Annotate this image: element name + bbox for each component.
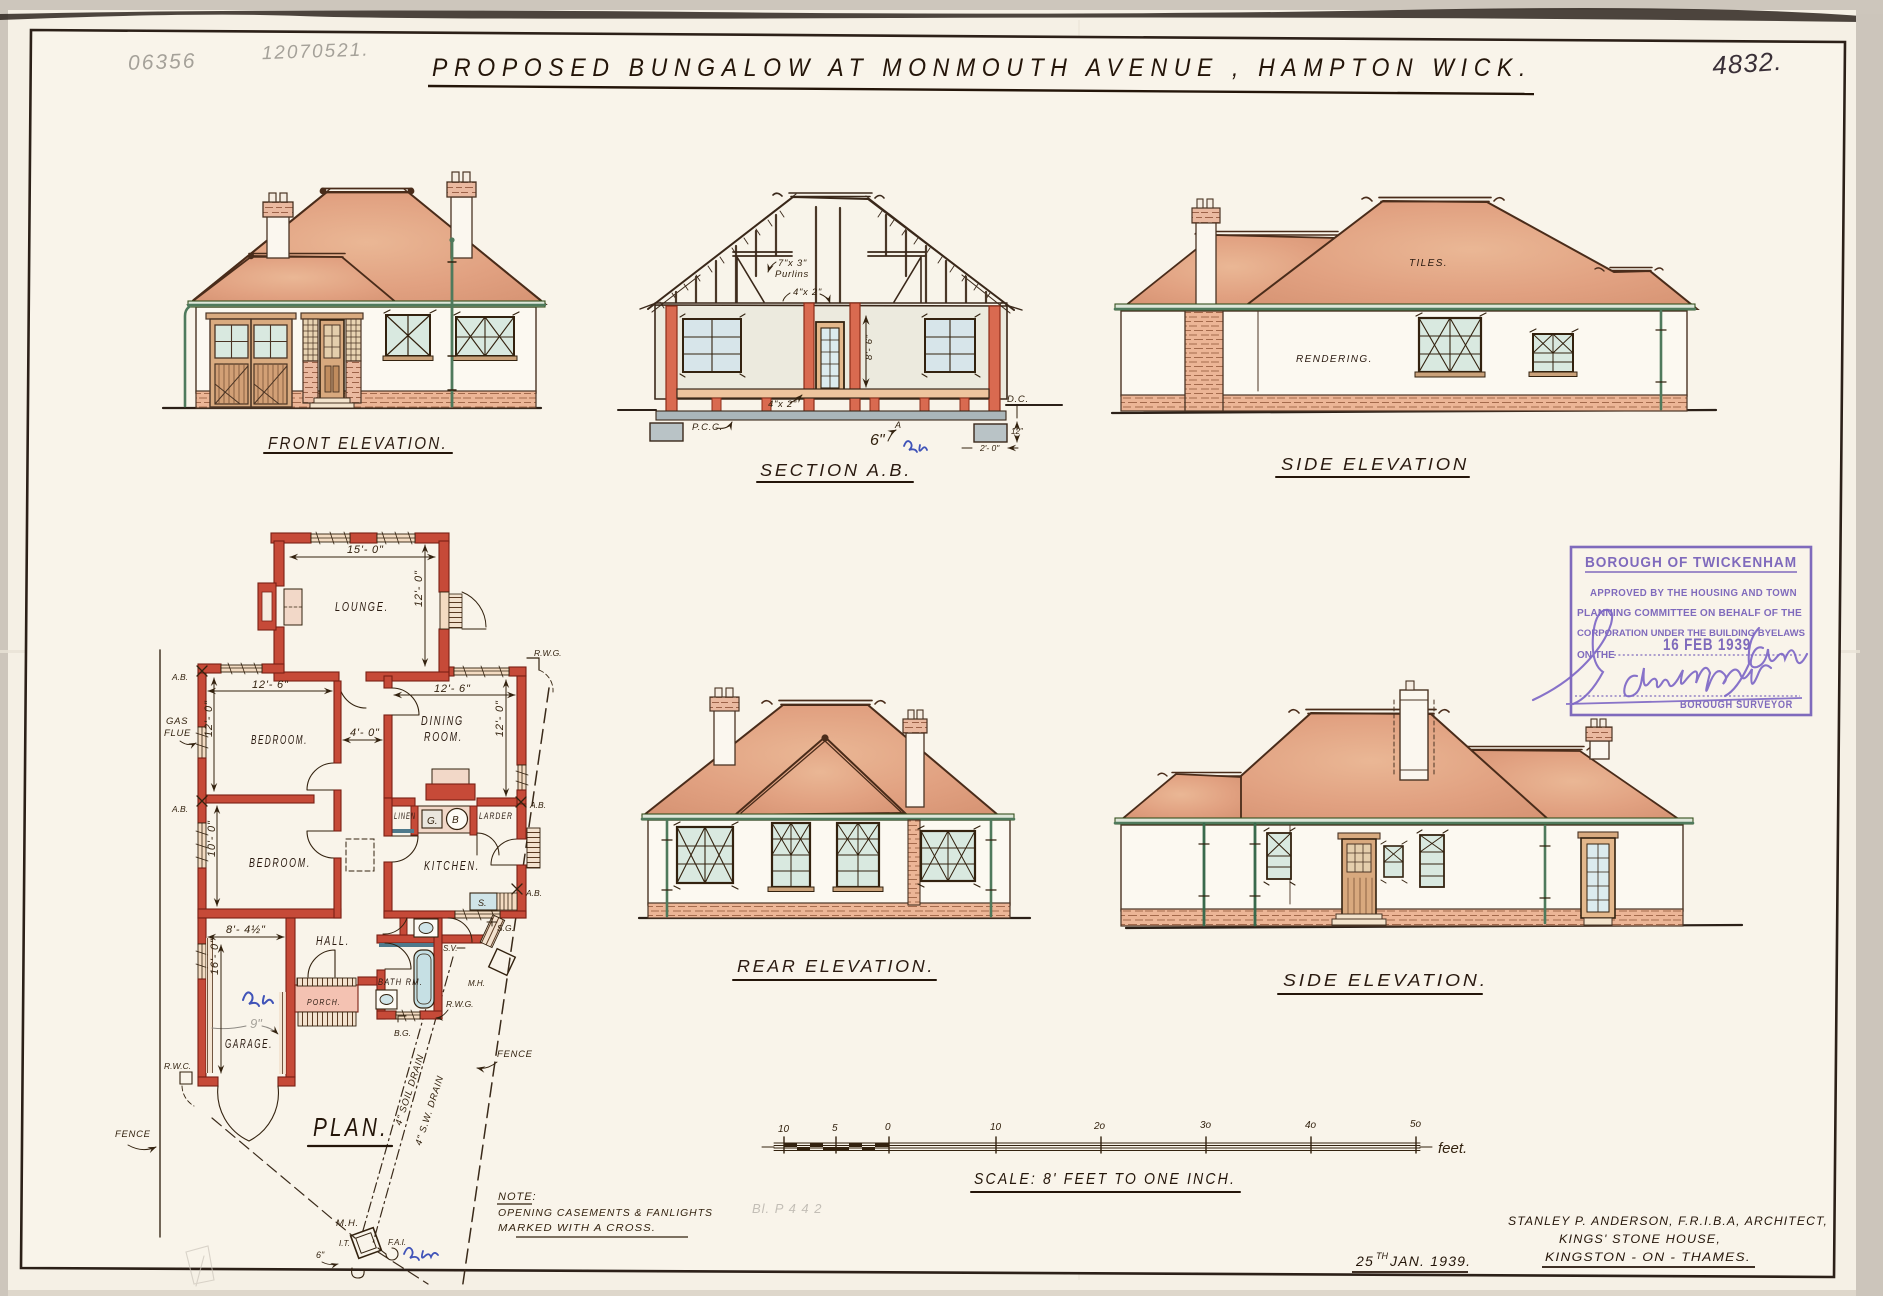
svg-text:0: 0 <box>885 1122 891 1133</box>
svg-text:16'- 0": 16'- 0" <box>209 938 221 975</box>
svg-text:M.H.: M.H. <box>336 1218 359 1229</box>
svg-text:LARDER: LARDER <box>479 811 513 821</box>
svg-text:R.W.G.: R.W.G. <box>534 648 562 658</box>
svg-text:15'- 0": 15'- 0" <box>347 544 384 556</box>
svg-text:STANLEY P. ANDERSON, F.R.I.: STANLEY P. ANDERSON, F.R.I.B.A, ARCHITEC… <box>1508 1214 1828 1228</box>
svg-text:FRONT ELEVATION.: FRONT ELEVATION. <box>268 433 448 453</box>
svg-text:A.B.: A.B. <box>171 804 188 814</box>
svg-text:PLAN.: PLAN. <box>313 1112 389 1142</box>
svg-text:F.A.I.: F.A.I. <box>388 1238 406 1247</box>
svg-text:G.: G. <box>427 816 438 827</box>
svg-text:TILES.: TILES. <box>1409 258 1448 269</box>
svg-text:SIDE ELEVATION: SIDE ELEVATION <box>1281 454 1469 474</box>
svg-text:16 FEB 1939: 16 FEB 1939 <box>1663 636 1751 654</box>
svg-text:A.B.: A.B. <box>525 888 542 898</box>
svg-text:S.G.: S.G. <box>497 923 514 933</box>
svg-text:S.V.: S.V. <box>443 944 458 953</box>
svg-text:B: B <box>452 815 459 826</box>
svg-text:4832.: 4832. <box>1711 46 1783 81</box>
svg-text:P.C.C.: P.C.C. <box>692 422 723 433</box>
svg-text:REAR ELEVATION.: REAR ELEVATION. <box>737 956 935 976</box>
svg-text:OPENING CASEMENTS & FANLIGH: OPENING CASEMENTS & FANLIGHTS <box>498 1207 713 1219</box>
svg-text:12070521.: 12070521. <box>261 39 369 64</box>
svg-text:Bl. P 4 4 2: Bl. P 4 4 2 <box>752 1201 823 1216</box>
svg-text:KINGS' STONE HOUSE,: KINGS' STONE HOUSE, <box>1559 1232 1721 1246</box>
svg-text:12'- 0": 12'- 0" <box>203 700 215 737</box>
svg-text:FLUE: FLUE <box>164 728 191 739</box>
svg-text:D.C.: D.C. <box>1007 394 1029 405</box>
svg-text:4"x 2": 4"x 2" <box>793 287 822 298</box>
svg-text:GARAGE.: GARAGE. <box>225 1037 273 1051</box>
svg-text:8'- 6": 8'- 6" <box>864 334 875 360</box>
svg-text:NOTE:: NOTE: <box>498 1191 537 1203</box>
svg-text:5: 5 <box>832 1123 838 1134</box>
svg-text:R.W.C.: R.W.C. <box>164 1061 191 1071</box>
svg-text:10'- 0": 10'- 0" <box>206 820 218 857</box>
svg-text:6": 6" <box>870 432 886 449</box>
svg-text:8'- 4½": 8'- 4½" <box>226 924 266 936</box>
svg-text:B.G.: B.G. <box>394 1028 411 1038</box>
svg-text:A: A <box>894 420 901 430</box>
svg-text:feet.: feet. <box>1438 1140 1467 1157</box>
svg-text:5o: 5o <box>1410 1119 1422 1130</box>
svg-text:10: 10 <box>778 1124 790 1135</box>
svg-text:MARKED WITH A CROSS.: MARKED WITH A CROSS. <box>498 1222 656 1234</box>
svg-text:R.W.G.: R.W.G. <box>446 999 474 1009</box>
svg-text:BATH RM.: BATH RM. <box>378 977 423 987</box>
svg-text:2o: 2o <box>1093 1121 1106 1132</box>
svg-text:TH: TH <box>1376 1251 1388 1261</box>
svg-text:LOUNGE.: LOUNGE. <box>335 600 389 614</box>
svg-text:12'- 0": 12'- 0" <box>494 700 506 737</box>
svg-text:SIDE ELEVATION.: SIDE ELEVATION. <box>1283 970 1488 990</box>
svg-text:S.: S. <box>478 898 487 908</box>
svg-text:BEDROOM.: BEDROOM. <box>249 856 311 870</box>
svg-text:25: 25 <box>1355 1253 1374 1269</box>
svg-text:PORCH.: PORCH. <box>307 997 341 1007</box>
svg-text:6": 6" <box>316 1250 325 1260</box>
svg-text:9": 9" <box>250 1016 263 1031</box>
svg-text:KITCHEN.: KITCHEN. <box>424 859 480 873</box>
svg-text:SECTION A.B.: SECTION A.B. <box>760 460 912 480</box>
svg-text:FENCE: FENCE <box>115 1129 151 1140</box>
svg-text:12'- 6": 12'- 6" <box>434 683 471 695</box>
svg-text:APPROVED BY THE HOUSING AND TO: APPROVED BY THE HOUSING AND TOWN <box>1590 588 1797 599</box>
svg-text:KINGSTON - ON - THAMES.: KINGSTON - ON - THAMES. <box>1545 1250 1751 1264</box>
svg-text:A.B.: A.B. <box>171 672 188 682</box>
svg-text:7"x 3": 7"x 3" <box>778 258 807 269</box>
svg-text:FENCE: FENCE <box>497 1049 533 1060</box>
svg-text:HALL.: HALL. <box>316 934 350 948</box>
svg-text:4o: 4o <box>1305 1120 1317 1131</box>
svg-text:BEDROOM.: BEDROOM. <box>251 733 308 747</box>
svg-text:06356: 06356 <box>128 50 197 75</box>
svg-text:2'- 0": 2'- 0" <box>979 443 1000 453</box>
svg-text:4"x 2": 4"x 2" <box>768 399 797 410</box>
svg-text:I.T.: I.T. <box>339 1239 350 1248</box>
svg-text:JAN. 1939.: JAN. 1939. <box>1389 1253 1471 1269</box>
svg-text:GAS: GAS <box>166 716 188 727</box>
svg-text:12'- 6": 12'- 6" <box>252 679 289 691</box>
svg-text:12": 12" <box>1011 427 1024 436</box>
svg-text:DINING: DINING <box>421 714 464 728</box>
svg-text:3o: 3o <box>1200 1120 1212 1131</box>
svg-text:10: 10 <box>990 1122 1002 1133</box>
svg-text:BOROUGH OF TWICKENHAM: BOROUGH OF TWICKENHAM <box>1585 555 1797 571</box>
svg-text:PROPOSED BUNGALOW AT MONMOU: PROPOSED BUNGALOW AT MONMOUTH AVENUE , H… <box>432 54 1532 82</box>
svg-text:Purlins: Purlins <box>775 269 809 280</box>
svg-text:LINEN: LINEN <box>394 811 416 821</box>
svg-text:12'- 0": 12'- 0" <box>413 570 425 607</box>
svg-text:A.B.: A.B. <box>529 800 546 810</box>
svg-text:SCALE: 8' FEET TO ONE INC: SCALE: 8' FEET TO ONE INCH. <box>974 1171 1236 1188</box>
svg-text:M.H.: M.H. <box>468 979 485 988</box>
svg-text:ROOM.: ROOM. <box>424 730 463 744</box>
svg-text:4'- 0": 4'- 0" <box>350 727 380 739</box>
svg-text:RENDERING.: RENDERING. <box>1296 354 1373 365</box>
